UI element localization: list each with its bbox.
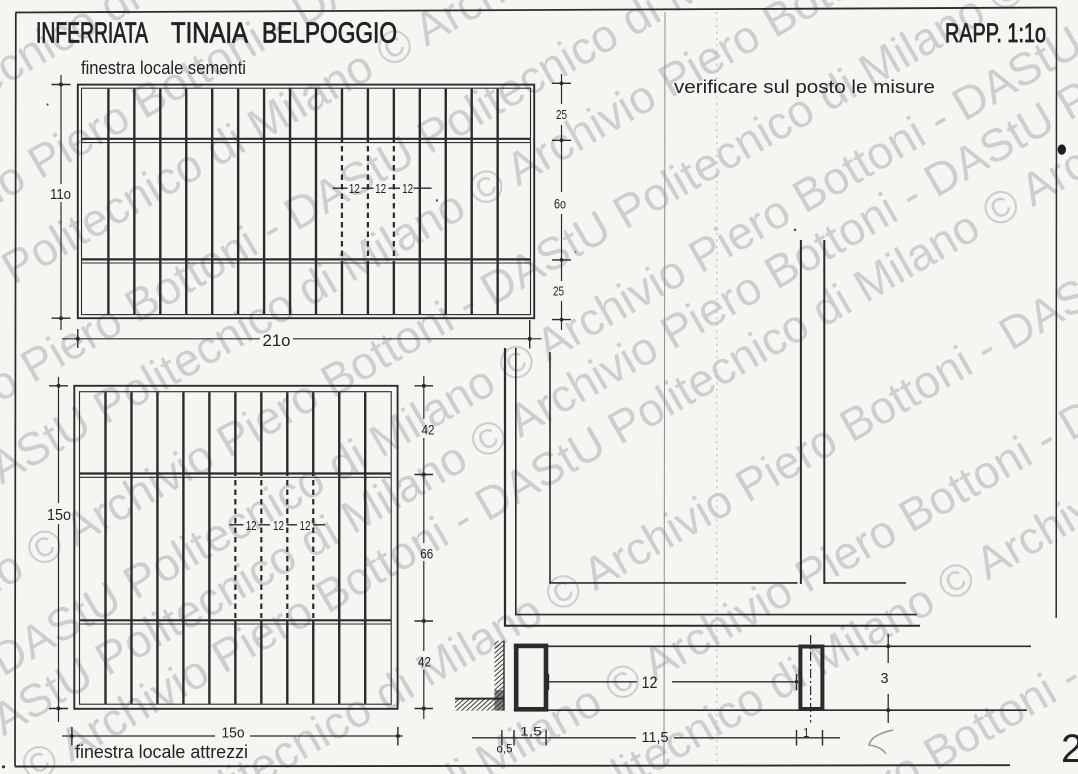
svg-text:12: 12: [642, 673, 658, 692]
svg-text:RAPP. 1:1o: RAPP. 1:1o: [945, 18, 1046, 48]
svg-text:12: 12: [375, 181, 386, 196]
svg-text:verificare sul posto le mis: verificare sul posto le misure: [674, 77, 935, 97]
svg-text:1,5: 1,5: [520, 727, 542, 739]
svg-text:15o: 15o: [47, 507, 71, 524]
svg-text:11o: 11o: [50, 186, 71, 203]
svg-text:15o: 15o: [222, 724, 245, 741]
svg-text:finestra locale attrezzi: finestra locale attrezzi: [75, 742, 248, 762]
svg-text:66: 66: [420, 546, 433, 562]
svg-text:INFERRIATA: INFERRIATA: [36, 18, 148, 50]
svg-text:21o: 21o: [263, 331, 291, 350]
svg-text:2: 2: [1061, 727, 1078, 771]
svg-text:12: 12: [402, 181, 413, 196]
svg-text:TINAIA: TINAIA: [171, 18, 249, 50]
svg-text:25: 25: [553, 284, 564, 299]
svg-text:o,5: o,5: [497, 744, 513, 756]
svg-text:finestra locale sementi: finestra locale sementi: [81, 58, 246, 78]
svg-text:25: 25: [556, 107, 567, 122]
svg-text:42: 42: [422, 422, 435, 438]
svg-text:BELPOGGIO: BELPOGGIO: [262, 18, 397, 50]
svg-text:3: 3: [881, 670, 889, 687]
svg-text:11,5: 11,5: [642, 730, 669, 746]
svg-text:1: 1: [803, 725, 809, 740]
svg-text:12: 12: [246, 518, 257, 533]
svg-text:12: 12: [273, 518, 284, 533]
svg-text:6o: 6o: [554, 196, 566, 212]
svg-text:12: 12: [300, 518, 311, 533]
svg-text:12: 12: [349, 181, 360, 196]
svg-text:42: 42: [418, 654, 431, 670]
